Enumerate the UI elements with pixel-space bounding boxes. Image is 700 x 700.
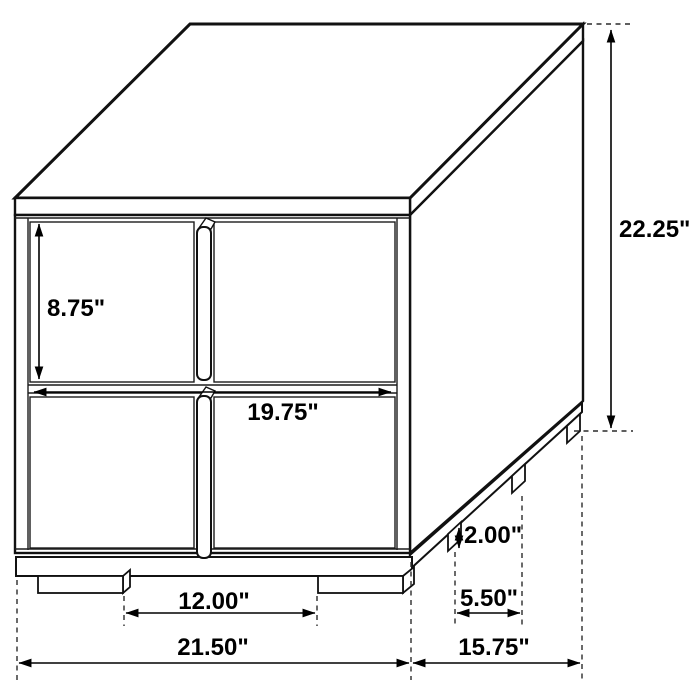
foot-front-right [318, 576, 403, 593]
label-overall-width: 21.50" [177, 634, 248, 661]
handle-bottom-drawer [197, 396, 211, 558]
label-front-foot-spacing: 12.00" [178, 588, 249, 615]
label-drawer-height: 8.75" [47, 295, 105, 322]
panel-bottom-left [30, 397, 194, 548]
nightstand-drawing-svg: 8.75" 19.75" 22.25" 2.00" 5.50" 12.00" 2… [0, 0, 700, 700]
handle-top-drawer [197, 227, 211, 380]
plinth-front-band [16, 557, 412, 576]
foot-front-left [38, 576, 123, 593]
label-overall-height: 22.25" [619, 216, 690, 243]
furniture-dimension-diagram: 8.75" 19.75" 22.25" 2.00" 5.50" 12.00" 2… [0, 0, 700, 700]
panel-top-right [214, 222, 395, 382]
label-overall-depth: 15.75" [458, 634, 529, 661]
top-fascia-front [15, 198, 410, 215]
label-side-foot-spacing: 5.50" [460, 585, 518, 612]
label-front-width: 19.75" [247, 399, 318, 426]
label-foot-height: 2.00" [464, 522, 522, 549]
